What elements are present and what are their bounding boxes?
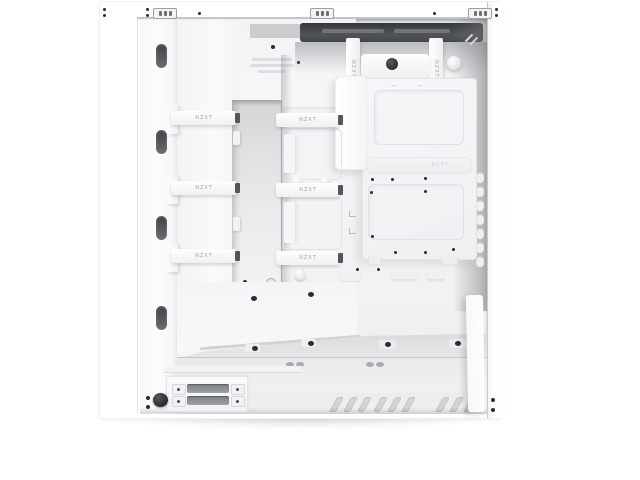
drive-tray-cutout	[374, 90, 464, 145]
ssd-tray-tab	[284, 202, 295, 243]
screw	[370, 191, 373, 194]
screw	[371, 178, 374, 181]
top-channel-step	[250, 24, 306, 38]
strap-clip	[235, 183, 240, 193]
rear-vent-slot	[476, 186, 484, 197]
rivet	[251, 296, 257, 301]
strap-label: NZXT	[195, 253, 213, 259]
embossed-brand-label: NZXT	[431, 162, 449, 168]
top-vent-latch	[310, 8, 334, 19]
cable-grommet	[156, 216, 167, 240]
rear-vent-slot	[476, 256, 484, 267]
strap-clip	[338, 185, 343, 195]
drive-slot	[187, 384, 229, 393]
screw-hole	[419, 82, 422, 85]
mount-tab	[427, 269, 444, 279]
cable-grommet	[156, 306, 167, 330]
screw	[424, 190, 427, 193]
rivet	[252, 346, 258, 351]
strap-label: NZXT	[195, 115, 213, 121]
screw	[495, 14, 498, 17]
strap-label: NZXT	[433, 60, 439, 78]
strap-label: NZXT	[195, 185, 213, 191]
screw	[103, 14, 106, 17]
rivet	[308, 292, 314, 297]
screw	[495, 8, 498, 11]
rivet	[385, 342, 391, 347]
screw	[391, 178, 394, 181]
cable-grommet	[156, 44, 167, 68]
strap-label: NZXT	[299, 117, 317, 123]
hook-mark	[349, 211, 356, 217]
drive-tab	[231, 384, 245, 395]
screw	[491, 398, 495, 402]
front-fold-line	[137, 19, 138, 413]
right-exterior-band	[487, 2, 503, 418]
cable-strap: NZXT	[171, 249, 237, 263]
drive-slot	[187, 396, 229, 405]
screw	[433, 12, 436, 15]
top-vent-latch	[153, 8, 177, 19]
hook-mark	[349, 228, 356, 234]
channel-clip	[233, 217, 240, 231]
drive-tab	[231, 396, 245, 407]
round-standoff	[295, 269, 306, 280]
recess-highlight	[322, 29, 384, 33]
mount-tab	[391, 269, 418, 279]
screw	[146, 14, 149, 17]
cable-strap: NZXT	[171, 111, 237, 125]
screw	[146, 405, 150, 409]
panel-foot	[441, 257, 458, 265]
strap-clip	[235, 251, 240, 261]
cable-strap: NZXT	[171, 181, 237, 195]
rivet	[455, 341, 461, 346]
cable-strap: NZXT	[276, 251, 340, 265]
drive-tab	[172, 396, 186, 407]
rear-vent-slot	[476, 242, 484, 253]
screw	[146, 396, 150, 400]
vent-hole	[376, 362, 384, 367]
rear-vent-slot	[476, 214, 484, 225]
top-vent-latch	[468, 8, 492, 19]
recess-highlight	[394, 29, 450, 33]
thumbscrew	[386, 58, 398, 70]
screw	[452, 248, 455, 251]
screw	[491, 408, 495, 412]
thumbscrew	[153, 393, 168, 407]
strap-label: NZXT	[299, 255, 317, 261]
screw	[424, 177, 427, 180]
channel-clip	[233, 131, 240, 145]
screw	[103, 8, 106, 11]
rear-psu-bracket	[466, 295, 485, 412]
round-standoff	[447, 56, 461, 70]
panel-foot	[368, 257, 382, 265]
mount-tab	[340, 271, 360, 281]
strap-clip	[338, 253, 343, 263]
cable-strap: NZXT	[276, 183, 340, 197]
screw	[424, 251, 427, 254]
cable-strap: NZXT	[276, 113, 340, 127]
drive-tray-cutout	[368, 184, 464, 240]
rivet	[308, 341, 314, 346]
screw	[377, 268, 380, 271]
screw	[271, 45, 275, 49]
screw	[146, 8, 149, 11]
rear-vent-slot	[476, 228, 484, 239]
ssd-tray-tab	[284, 134, 295, 173]
rear-vent-slot	[476, 200, 484, 211]
strap-clip	[235, 113, 240, 123]
product-photo-canvas: NZXT NZXT NZXT NZXT	[0, 0, 640, 480]
cable-grommet	[156, 130, 167, 154]
cage-shelf	[164, 366, 302, 373]
strap-label: NZXT	[299, 187, 317, 193]
screw	[371, 235, 374, 238]
screw	[394, 251, 397, 254]
vent-hole	[366, 362, 374, 367]
rear-vent-slot	[476, 172, 484, 183]
tray-mid-rail: NZXT	[366, 157, 472, 174]
screw	[356, 268, 359, 271]
strap-clip	[338, 115, 343, 125]
drive-tab	[172, 384, 186, 395]
screw	[198, 12, 201, 15]
screw-hole	[392, 82, 395, 85]
